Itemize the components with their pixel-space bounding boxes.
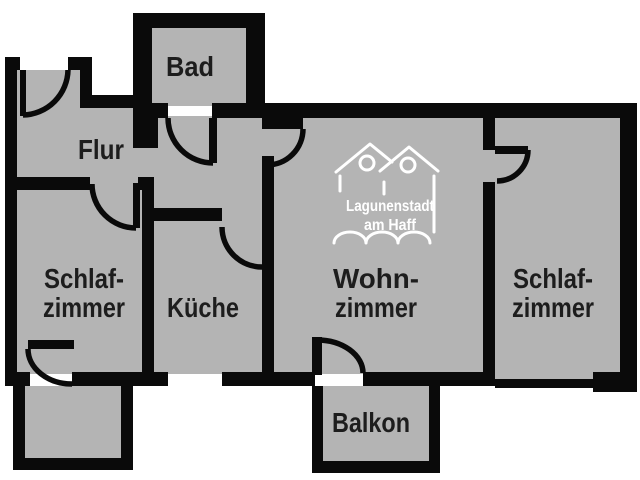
wall-balkon-right	[429, 372, 440, 473]
floor-plan-drawing: Lagunenstadt am Haff Bad Flur Schlaf- zi…	[0, 0, 640, 480]
wall-bad-left	[133, 13, 152, 118]
door-leaf-icon	[20, 70, 26, 116]
wall-top-main	[246, 103, 637, 118]
room-label-schlafzimmer-links-line2: zimmer	[43, 292, 125, 323]
wall-schlafzimmer-links-top	[5, 177, 90, 190]
door-leaf-icon	[28, 340, 74, 349]
wall-bad-right	[246, 13, 265, 118]
wall-terrace-right	[121, 386, 133, 470]
wall-bottom-right-corner	[593, 372, 637, 392]
room-label-schlafzimmer-rechts-line1: Schlaf-	[513, 263, 593, 294]
wall-bottom-d	[222, 372, 315, 386]
terrace-floor	[25, 386, 121, 458]
wall-wohnzimmer-left-divider	[262, 156, 274, 386]
wall-schlafzimmer-rechts-divider-upper	[483, 103, 495, 150]
wall-kueche-left-divider	[142, 177, 154, 386]
wall-bad-top	[133, 13, 265, 28]
room-label-bad: Bad	[166, 51, 214, 82]
wall-schlafzimmer-rechts-divider-lower	[483, 182, 495, 386]
door-leaf-icon	[133, 183, 140, 228]
wall-right-outer	[620, 103, 637, 392]
room-label-balkon: Balkon	[332, 407, 410, 438]
wall-stub-bad-corner	[133, 103, 158, 148]
room-schlafzimmer-rechts-floor	[488, 116, 620, 380]
room-label-schlafzimmer-rechts-line2: zimmer	[512, 292, 594, 323]
wall-balkon-left	[312, 386, 323, 473]
room-label-wohnzimmer-line1: Wohn-	[333, 263, 419, 294]
logo-text-line1: Lagunenstadt	[346, 198, 435, 215]
door-leaf-icon	[495, 146, 528, 154]
floor-plan-canvas: Lagunenstadt am Haff Bad Flur Schlaf- zi…	[0, 0, 640, 480]
wall-left-outer	[5, 57, 17, 386]
window-sill-schlafzimmer-rechts	[495, 379, 595, 388]
wall-balkon-bottom	[312, 461, 440, 473]
wall-terrace-left	[13, 386, 25, 470]
room-label-flur: Flur	[78, 134, 124, 165]
room-label-wohnzimmer-line2: zimmer	[335, 292, 417, 323]
room-label-schlafzimmer-links-line1: Schlaf-	[44, 263, 124, 294]
wall-flur-top-lower	[80, 95, 135, 108]
wall-bottom-a	[5, 372, 30, 386]
door-leaf-icon	[209, 118, 217, 163]
room-wohnzimmer-floor	[266, 116, 488, 374]
wall-bottom-c	[133, 372, 168, 386]
room-label-kueche: Küche	[167, 292, 239, 323]
door-leaf-icon	[262, 118, 303, 129]
wall-terrace-bottom	[13, 458, 133, 470]
